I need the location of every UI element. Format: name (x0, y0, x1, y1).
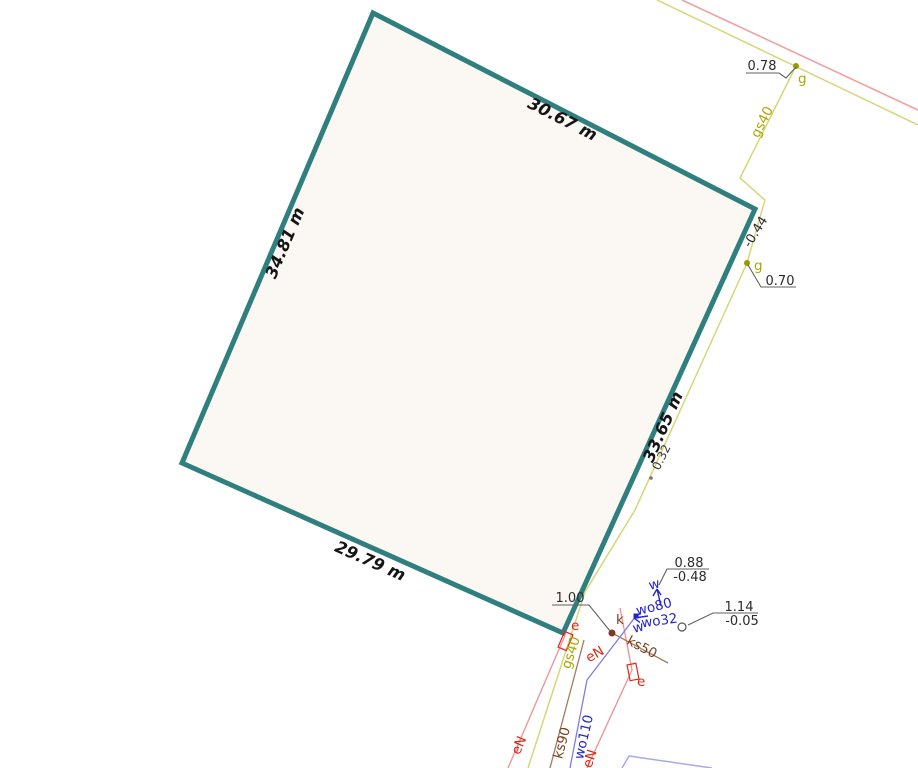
gas-elev-mid-value: 0.70 (766, 274, 795, 289)
benchmark-labels: 1.14 -0.05 (725, 600, 759, 629)
sewer-point-label: k (616, 612, 624, 628)
sewer-elev-value: 1.00 (556, 591, 585, 606)
water-depth-value: -0.48 (673, 570, 707, 585)
water-elev-value: 0.88 (675, 556, 704, 571)
sewer-line-label-ks90: ks90 (550, 725, 574, 760)
power-box-2-label: e (637, 674, 645, 690)
building-outline (622, 756, 712, 768)
gas-point-top-label: g (798, 71, 807, 87)
power-box-1-label: e (571, 618, 579, 634)
gas-offset-tick (649, 476, 653, 480)
gas-main-line (657, 0, 918, 125)
map-canvas[interactable]: 30.67 m 34.81 m 33.65 m 29.79 m 0.78 g g… (0, 0, 918, 768)
benchmark-circle-marker (678, 623, 686, 631)
gas-point-top (793, 63, 799, 69)
water-dir-up-label: w (647, 576, 662, 594)
gas-line-label-top: gs40 (748, 104, 777, 140)
power-line-label-1: eN (583, 643, 607, 666)
gas-elev-top-value: 0.78 (748, 59, 777, 74)
road-line (682, 0, 918, 110)
benchmark-depth-value: -0.05 (725, 614, 759, 629)
power-line-label-2: eN (508, 734, 530, 757)
road-lines (657, 0, 918, 125)
gas-point-mid-label: g (754, 258, 763, 274)
benchmark-elev-value: 1.14 (725, 600, 754, 615)
parcel-boundary (182, 13, 755, 633)
gas-point-mid (744, 260, 750, 266)
